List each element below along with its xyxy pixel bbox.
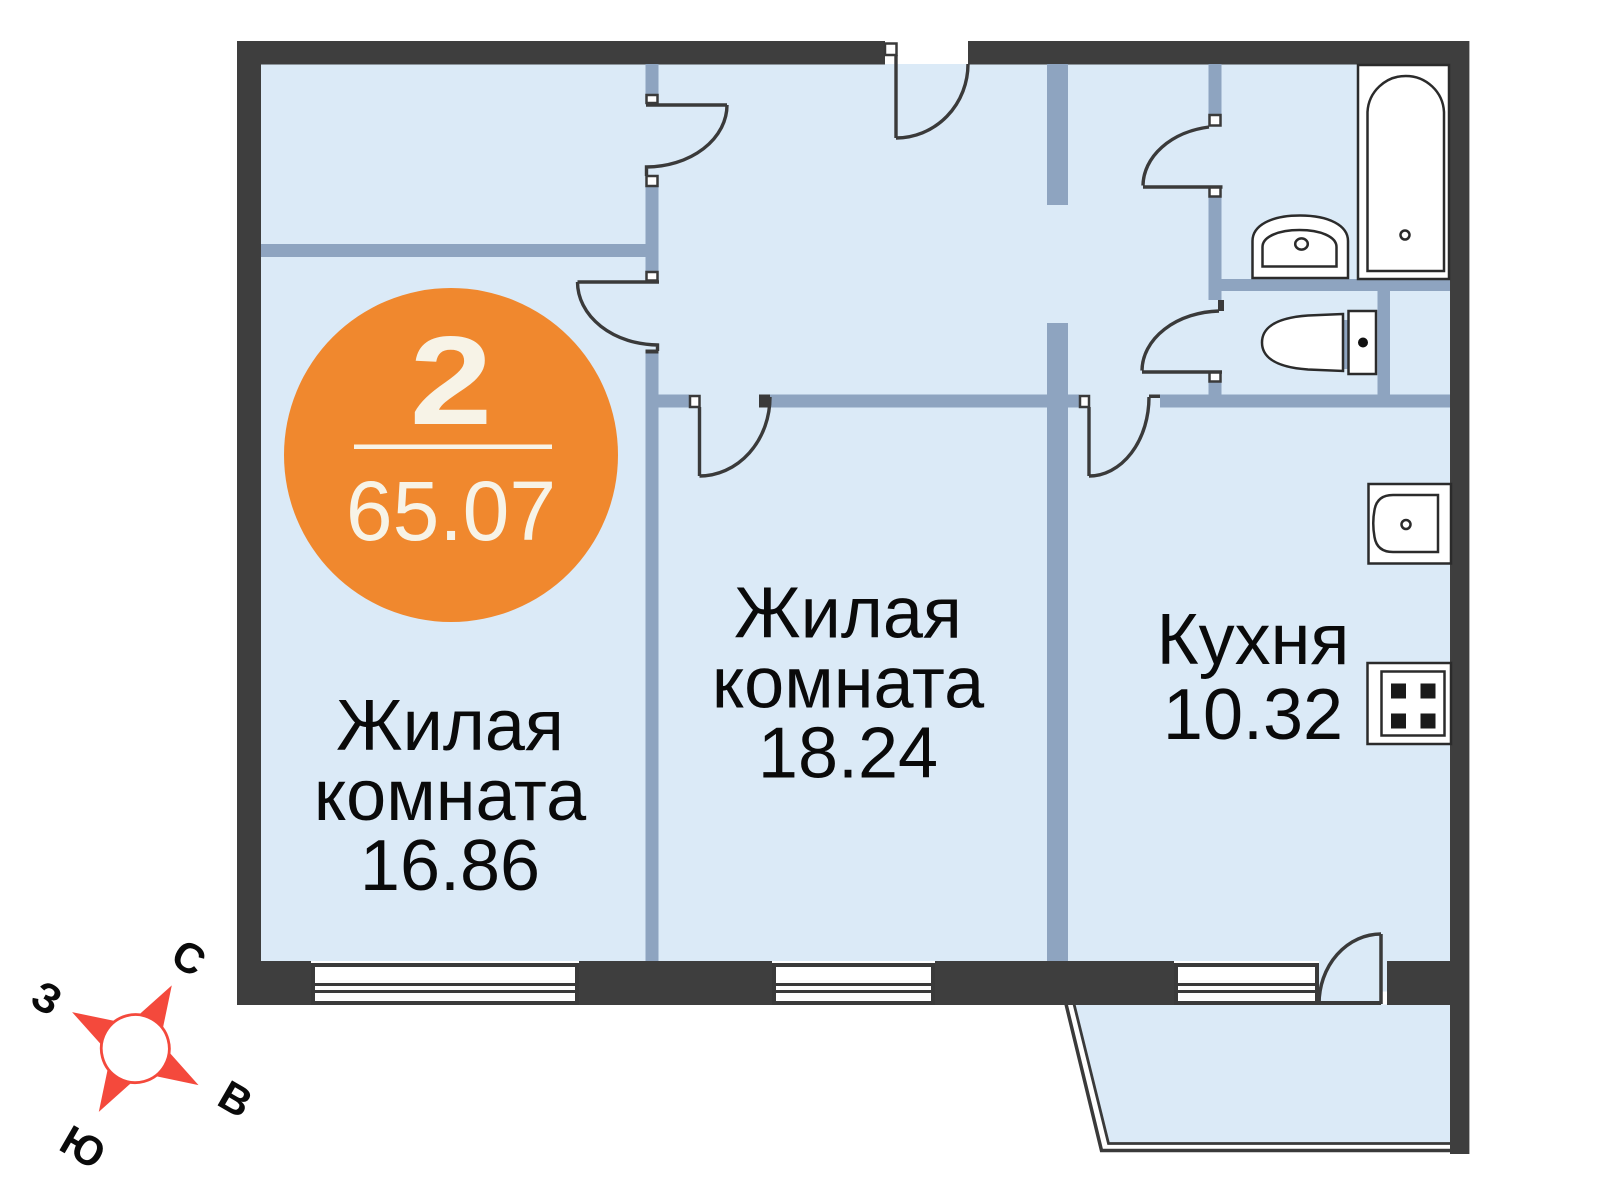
svg-text:комната: комната [314,756,587,836]
svg-text:комната: комната [712,644,985,724]
svg-text:Жилая: Жилая [734,574,962,654]
svg-text:10.32: 10.32 [1163,675,1343,755]
svg-text:16.86: 16.86 [360,826,540,906]
svg-text:2: 2 [410,311,493,452]
svg-text:18.24: 18.24 [758,714,938,794]
svg-text:Кухня: Кухня [1157,600,1350,680]
svg-text:65.07: 65.07 [346,464,556,558]
svg-text:Жилая: Жилая [336,686,564,766]
